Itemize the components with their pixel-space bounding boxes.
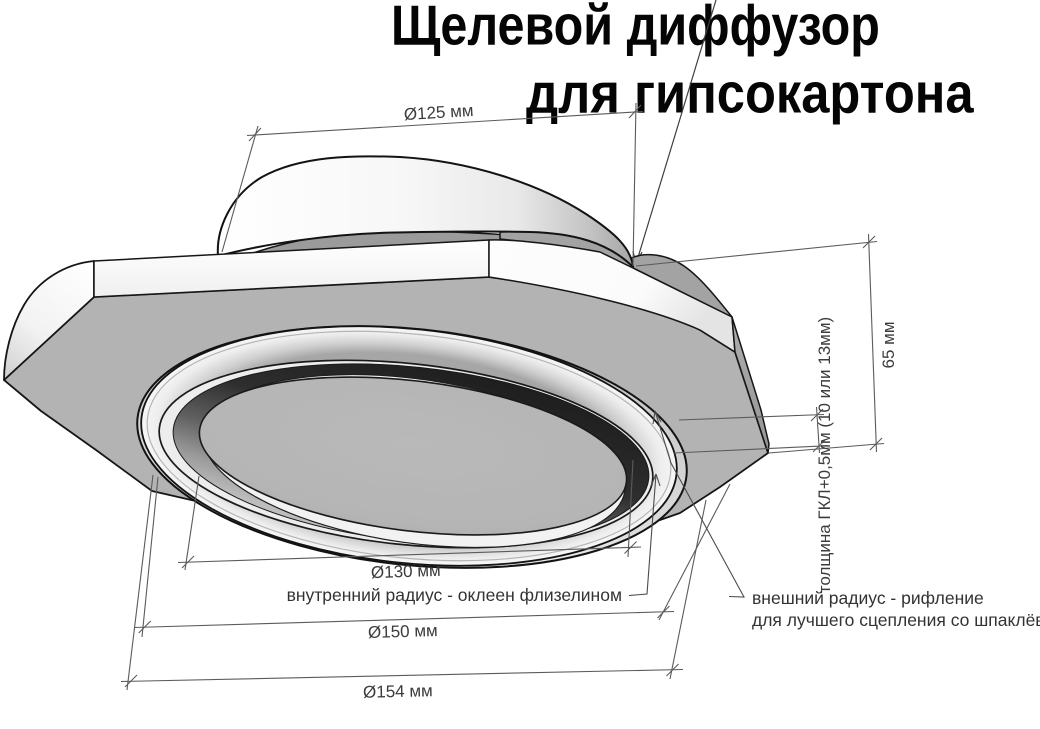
svg-text:толщина ГКЛ+0,5мм (10 или 13мм: толщина ГКЛ+0,5мм (10 или 13мм) [815,317,834,593]
svg-text:Ø154 мм: Ø154 мм [363,681,433,701]
svg-text:Щелевой диффузор: Щелевой диффузор [391,0,880,57]
svg-text:65 мм: 65 мм [879,321,898,368]
svg-text:для гипсокартона: для гипсокартона [526,62,974,125]
svg-text:внутренний радиус - оклеен фли: внутренний радиус - оклеен флизелином [287,585,622,605]
svg-text:Ø150 мм: Ø150 мм [368,621,438,642]
svg-text:для лучшего сцепления со шпакл: для лучшего сцепления со шпаклёвкой [752,610,1040,630]
svg-text:Ø130 мм: Ø130 мм [371,561,441,582]
svg-text:внешний радиус - рифление: внешний радиус - рифление [752,588,984,608]
